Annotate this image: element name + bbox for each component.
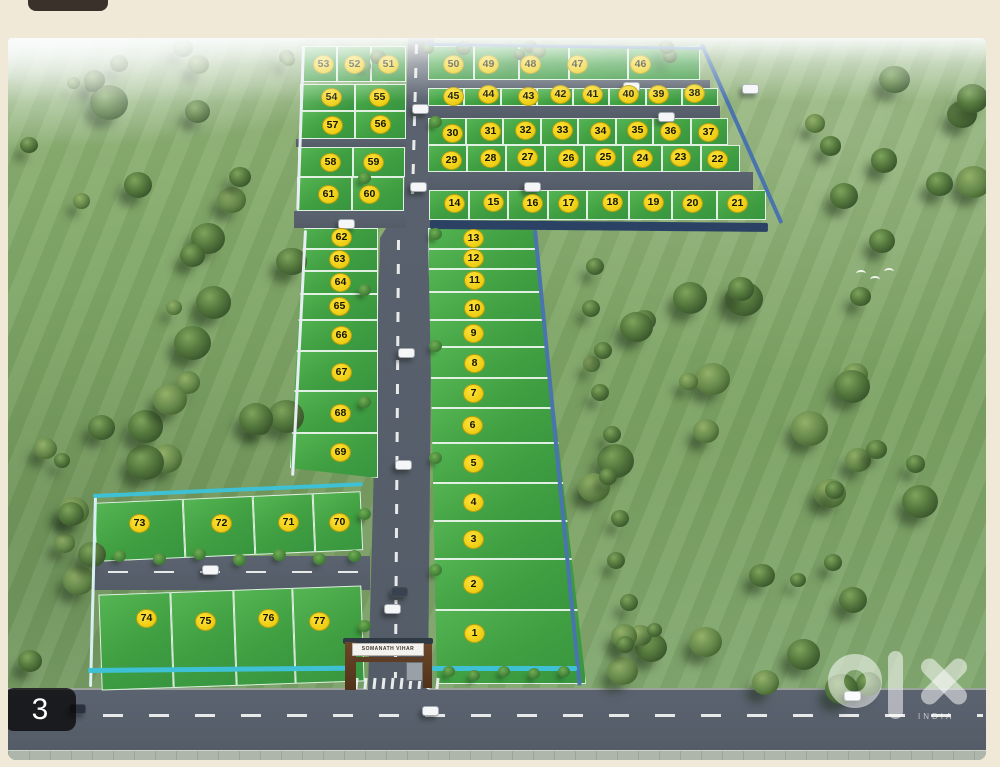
plot-number-badge: 72 — [211, 514, 232, 533]
plot-number-badge: 42 — [550, 85, 571, 104]
plot-number-badge: 69 — [330, 443, 351, 462]
tree — [695, 363, 730, 395]
roadside-bush — [468, 670, 480, 681]
plot-number-badge: 57 — [322, 116, 343, 135]
tree — [956, 166, 986, 198]
gate-pillar-right — [423, 644, 432, 688]
tree — [173, 39, 193, 57]
car — [395, 460, 412, 470]
plot-number-badge: 24 — [632, 149, 653, 168]
plot-number-badge: 33 — [552, 121, 573, 140]
plot-row — [428, 88, 718, 106]
plot-row — [428, 118, 728, 145]
car — [658, 112, 675, 122]
plot-number-badge: 55 — [369, 88, 390, 107]
plot-number-badge: 68 — [330, 404, 351, 423]
plot-number-badge: 16 — [522, 194, 543, 213]
plot-number-badge: 43 — [518, 87, 539, 106]
plot-number-badge: 48 — [520, 55, 541, 74]
plot-number-badge: 56 — [370, 115, 391, 134]
plot-number-badge: 54 — [321, 88, 342, 107]
plot-number-badge: 2 — [463, 575, 484, 594]
roadside-bush — [443, 666, 455, 677]
tree — [88, 415, 116, 441]
plot-cell — [428, 559, 586, 610]
car — [524, 182, 541, 192]
plot-number-badge: 62 — [331, 228, 352, 247]
plot-number-badge: 12 — [463, 249, 484, 268]
car — [742, 84, 759, 94]
plot-cell — [98, 592, 173, 690]
car — [412, 104, 429, 114]
tree — [153, 384, 187, 415]
roadside-bush — [528, 668, 540, 679]
plot-number-badge: 41 — [582, 85, 603, 104]
tree — [616, 636, 634, 653]
internal-road — [428, 106, 720, 118]
internal-road — [428, 80, 710, 88]
plot-number-badge: 36 — [660, 122, 681, 141]
gate-booth — [406, 662, 423, 681]
tree — [268, 400, 304, 433]
plot-number-badge: 38 — [684, 84, 705, 103]
road-center-dashes — [103, 714, 983, 717]
roadside-bush — [558, 666, 570, 677]
plot-number-badge: 70 — [329, 513, 350, 532]
plot-row — [98, 585, 364, 690]
tree — [185, 100, 210, 123]
tree — [126, 445, 164, 480]
plot-number-badge: 27 — [517, 148, 538, 167]
plot-number-badge: 18 — [602, 193, 623, 212]
plot-number-badge: 73 — [129, 514, 150, 533]
plot-number-badge: 50 — [443, 55, 464, 74]
plot-number-badge: 46 — [630, 55, 651, 74]
car — [384, 604, 401, 614]
plot-number-badge: 76 — [258, 609, 279, 628]
plot-number-badge: 6 — [462, 416, 483, 435]
tree — [749, 564, 775, 587]
plot-number-badge: 71 — [278, 513, 299, 532]
roadside-tree — [273, 549, 286, 561]
plot-number-badge: 14 — [444, 194, 465, 213]
tree — [591, 384, 609, 401]
tree — [850, 287, 870, 306]
tree — [673, 282, 707, 314]
plot-number-badge: 21 — [727, 194, 748, 213]
tree — [63, 566, 94, 594]
tree — [906, 455, 925, 473]
tree — [871, 148, 897, 172]
tree — [620, 594, 638, 611]
tree — [128, 410, 164, 443]
plot-number-badge: 40 — [618, 85, 639, 104]
plot-number-badge: 45 — [443, 87, 464, 106]
sidewalk — [8, 750, 986, 760]
plot-number-badge: 39 — [648, 85, 669, 104]
olx-gallery-page: 1234567891011121314151617181920212223242… — [0, 0, 1000, 767]
plot-row — [297, 177, 404, 211]
tree — [620, 312, 652, 342]
plot-number-badge: 67 — [331, 363, 352, 382]
plot-number-badge: 22 — [707, 150, 728, 169]
roadside-tree — [348, 550, 361, 562]
plot-number-badge: 53 — [313, 55, 334, 74]
tree — [599, 468, 617, 485]
gate-sign: SOMANATH VIHAR — [352, 643, 424, 656]
plot-number-badge: 49 — [478, 55, 499, 74]
plot-row — [300, 84, 406, 111]
car — [844, 691, 861, 701]
tree — [166, 300, 182, 315]
plot-number-badge: 5 — [463, 454, 484, 473]
roadside-tree — [313, 553, 326, 565]
plot-number-badge: 77 — [309, 612, 330, 631]
birds — [884, 268, 894, 275]
internal-road — [296, 139, 406, 147]
roadside-tree — [113, 550, 126, 562]
plot-number-badge: 32 — [515, 121, 536, 140]
plot-number-badge: 60 — [359, 185, 380, 204]
car — [398, 348, 415, 358]
site-plan-render: 1234567891011121314151617181920212223242… — [8, 38, 986, 760]
tree — [583, 356, 600, 372]
tree — [791, 411, 828, 445]
roadside-tree — [358, 620, 371, 632]
plot-row — [429, 190, 766, 220]
plot-number-badge: 31 — [480, 122, 501, 141]
roadside-bush — [498, 666, 510, 677]
plot-number-badge: 28 — [480, 149, 501, 168]
tree — [20, 137, 38, 153]
tree — [790, 573, 805, 587]
car — [391, 587, 408, 597]
plot-number-badge: 44 — [478, 85, 499, 104]
tree — [693, 419, 719, 443]
image-counter-badge: 3 — [8, 688, 76, 731]
plot-number-badge: 11 — [464, 271, 485, 290]
plot-number-badge: 23 — [670, 148, 691, 167]
top-left-pill — [28, 0, 108, 11]
plot-number-badge: 13 — [463, 229, 484, 248]
plot-number-badge: 20 — [682, 194, 703, 213]
plot-number-badge: 74 — [136, 609, 157, 628]
plot-number-badge: 35 — [627, 121, 648, 140]
plot-row — [428, 145, 740, 172]
plot-number-badge: 1 — [464, 624, 485, 643]
car — [202, 565, 219, 575]
roadside-tree — [429, 116, 442, 128]
roadside-tree — [153, 553, 166, 565]
roadside-tree — [358, 396, 371, 408]
tree — [586, 258, 604, 275]
roadside-tree — [429, 340, 442, 352]
tree — [611, 510, 629, 527]
tree — [824, 554, 842, 570]
car — [422, 706, 439, 716]
plot-number-badge: 8 — [464, 354, 485, 373]
plot-number-badge: 52 — [344, 55, 365, 74]
plot-number-badge: 29 — [441, 151, 462, 170]
plot-number-badge: 3 — [463, 530, 484, 549]
plot-number-badge: 51 — [378, 55, 399, 74]
listing-photo[interactable]: 1234567891011121314151617181920212223242… — [8, 38, 986, 760]
birds — [870, 276, 880, 283]
plot-number-badge: 25 — [595, 148, 616, 167]
tree — [728, 277, 753, 300]
tree — [174, 326, 211, 360]
tree — [679, 373, 697, 390]
plot-number-badge: 75 — [195, 612, 216, 631]
plot-number-badge: 7 — [463, 384, 484, 403]
internal-road — [428, 172, 753, 190]
plot-number-badge: 19 — [643, 193, 664, 212]
tree — [239, 403, 273, 435]
roadside-tree — [429, 228, 442, 240]
tree — [689, 627, 722, 657]
plot-number-badge: 30 — [442, 124, 463, 143]
roadside-tree — [233, 554, 246, 566]
plot-row — [298, 147, 405, 177]
plot-cell — [170, 590, 236, 688]
plot-number-badge: 15 — [483, 193, 504, 212]
plot-number-badge: 59 — [363, 153, 384, 172]
internal-road — [93, 556, 370, 590]
tree — [229, 167, 251, 187]
plot-number-badge: 26 — [558, 149, 579, 168]
tree — [196, 286, 232, 319]
tree — [607, 657, 637, 685]
plot-number-badge: 47 — [567, 55, 588, 74]
tree — [820, 136, 841, 155]
roadside-tree — [193, 548, 206, 560]
tree — [217, 187, 246, 214]
tree — [902, 485, 938, 518]
plot-number-badge: 66 — [331, 326, 352, 345]
roadside-tree — [429, 452, 442, 464]
plot-number-badge: 63 — [329, 250, 350, 269]
roadside-tree — [358, 284, 371, 296]
road-dashes — [108, 571, 358, 573]
tree — [73, 193, 90, 209]
plot-number-badge: 37 — [698, 123, 719, 142]
plot-number-badge: 58 — [320, 153, 341, 172]
tree — [752, 670, 779, 695]
plot-number-badge: 65 — [329, 297, 350, 316]
roadside-tree — [358, 172, 371, 184]
roadside-tree — [358, 508, 371, 520]
tree — [866, 440, 886, 459]
tree — [647, 623, 662, 637]
roadside-tree — [429, 564, 442, 576]
birds — [856, 270, 866, 277]
plot-number-badge: 64 — [330, 273, 351, 292]
plot-number-badge: 61 — [318, 185, 339, 204]
tree — [582, 300, 600, 317]
tree — [603, 426, 621, 443]
tree — [957, 84, 986, 113]
car — [410, 182, 427, 192]
tree — [879, 66, 909, 94]
plot-number-badge: 34 — [590, 122, 611, 141]
plot-number-badge: 9 — [463, 324, 484, 343]
plot-number-badge: 10 — [464, 299, 485, 318]
tree — [58, 502, 85, 526]
plot-number-badge: 17 — [558, 194, 579, 213]
plot-number-badge: 4 — [463, 493, 484, 512]
entrance-gate: SOMANATH VIHAR — [343, 636, 435, 694]
